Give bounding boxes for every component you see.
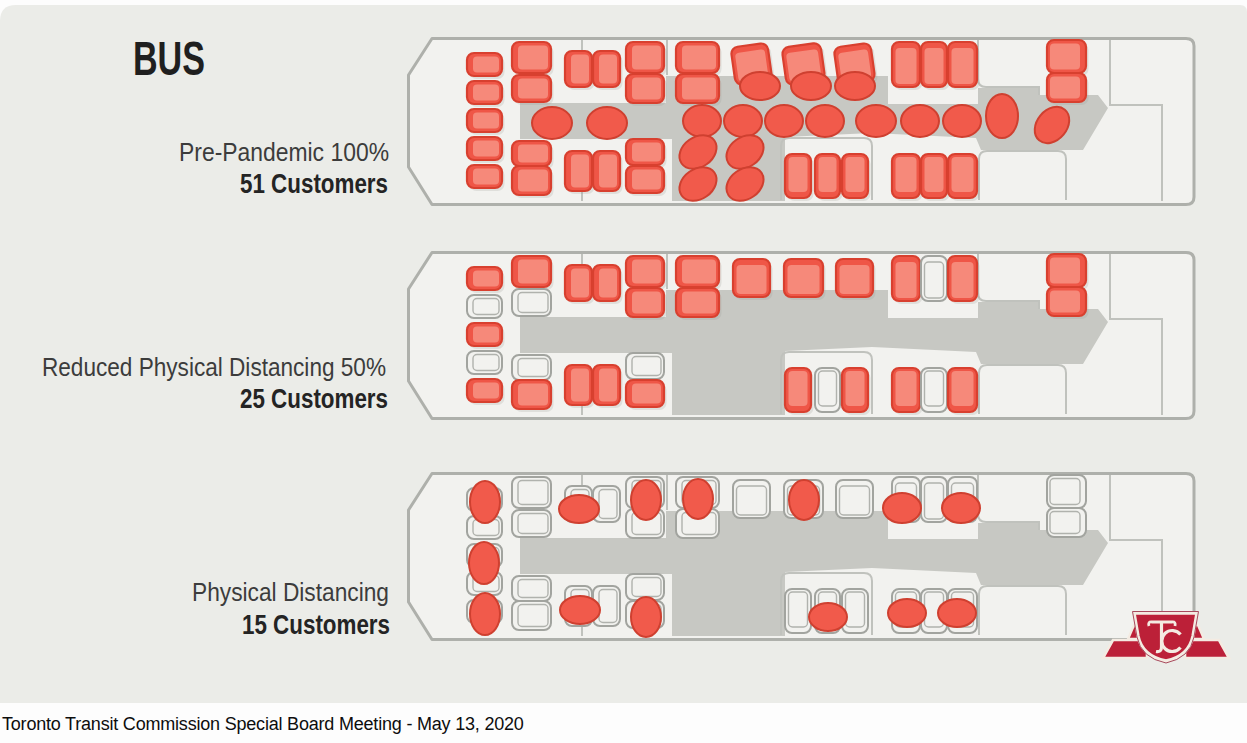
svg-text:BUS: BUS <box>133 31 205 85</box>
svg-text:51 Customers: 51 Customers <box>240 169 388 199</box>
svg-text:Reduced Physical Distancing 50: Reduced Physical Distancing 50% <box>42 352 386 382</box>
svg-text:Physical Distancing: Physical Distancing <box>192 577 389 607</box>
svg-text:15 Customers: 15 Customers <box>242 610 390 640</box>
svg-text:25 Customers: 25 Customers <box>240 384 388 414</box>
svg-text:Pre-Pandemic 100%: Pre-Pandemic 100% <box>179 137 389 167</box>
